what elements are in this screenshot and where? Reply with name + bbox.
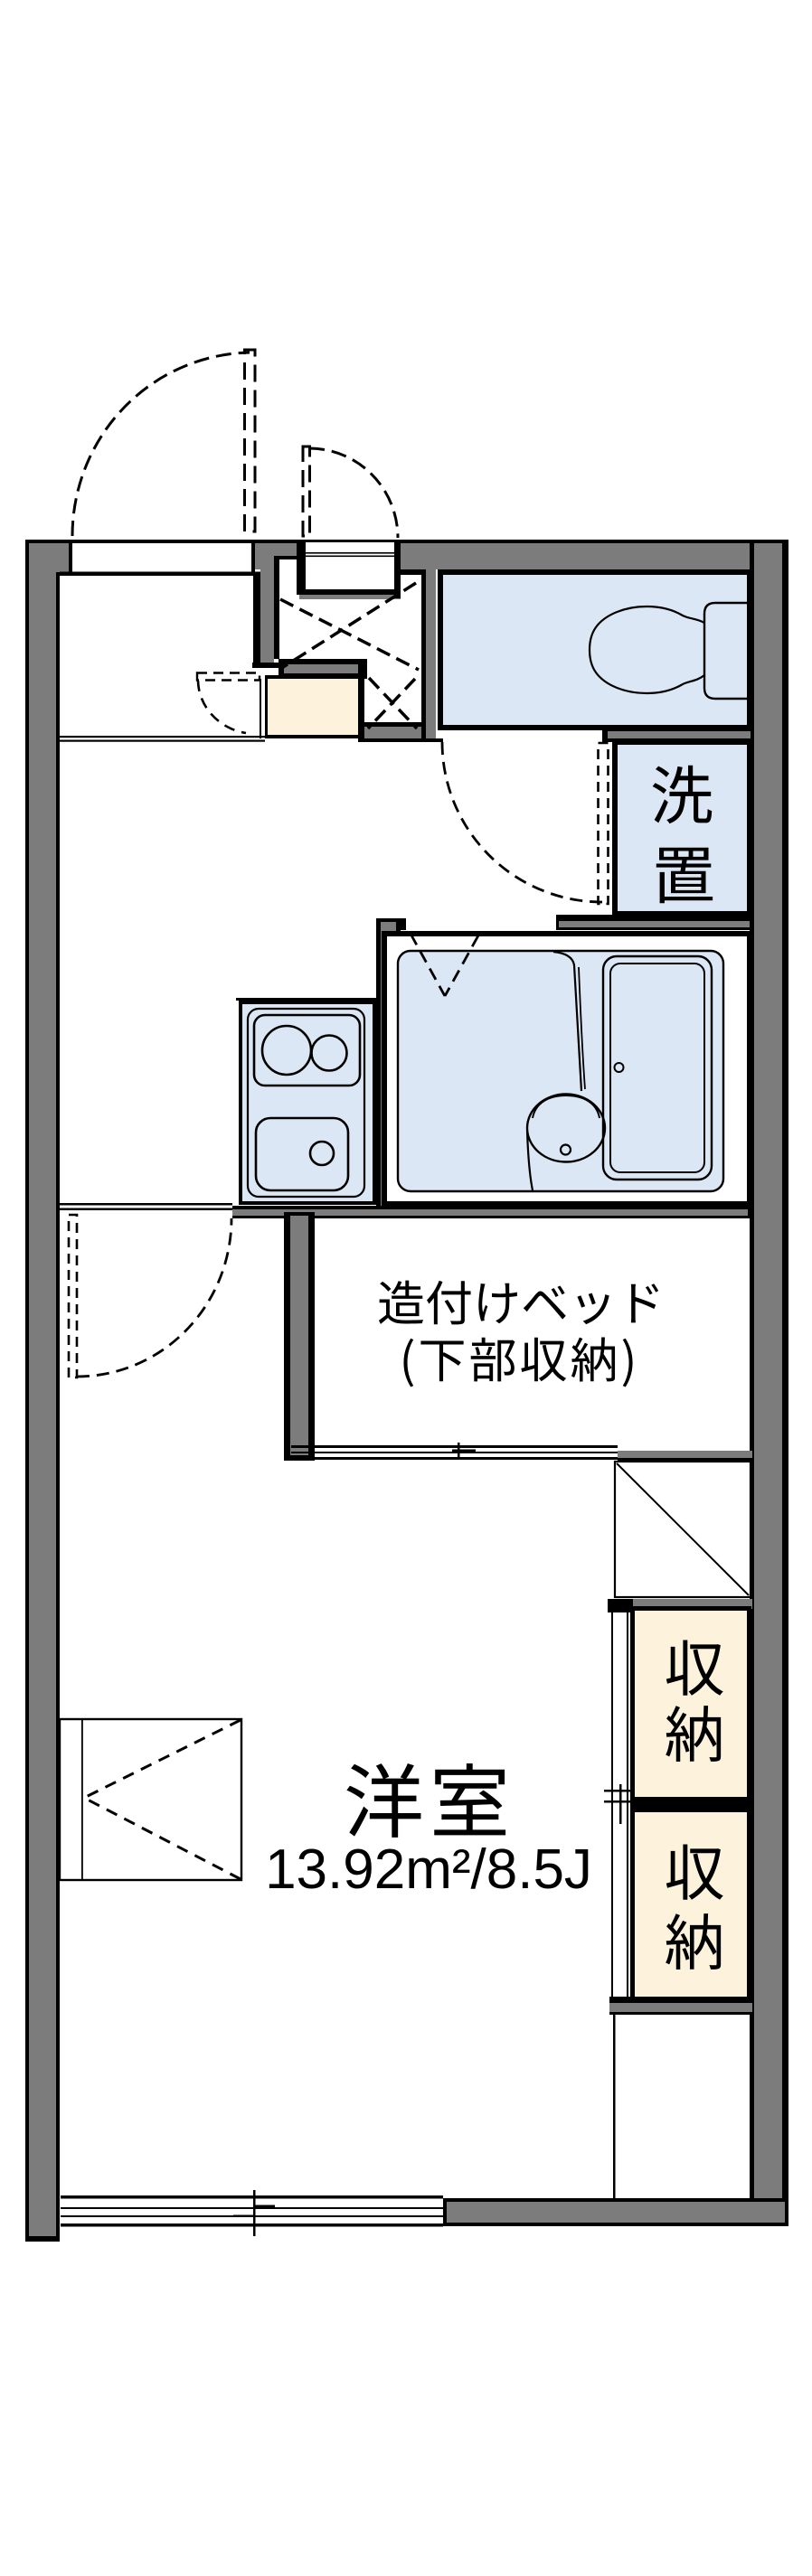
svg-text:13.92m²/8.5J: 13.92m²/8.5J bbox=[265, 1838, 592, 1901]
